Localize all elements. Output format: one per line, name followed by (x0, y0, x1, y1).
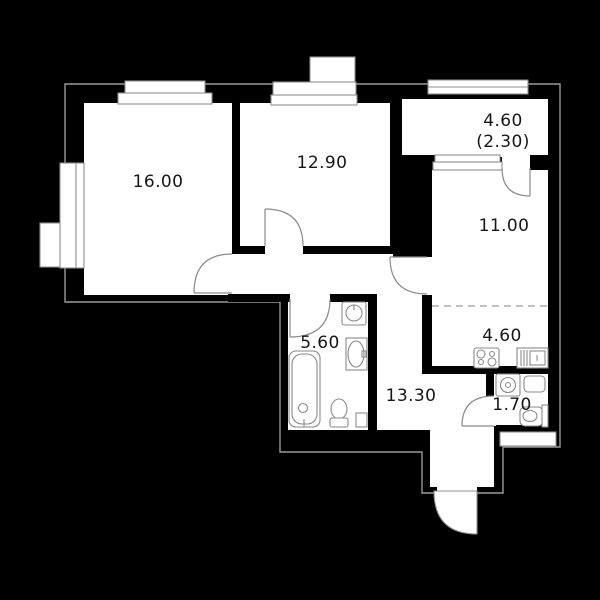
kitchen-zone-area-label: 4.60 (482, 326, 521, 346)
wall-hallway-top-left (232, 246, 265, 254)
bedroom-window-shaft (310, 57, 355, 83)
wc-area-label: 1.70 (492, 395, 531, 415)
vestibule-floor (430, 430, 494, 487)
living-left-window-sill (76, 163, 84, 268)
balcony-reduced-area-label: (2.30) (476, 132, 530, 152)
wall-balcony-bottom-right (530, 155, 548, 170)
bedroom-floor (240, 103, 390, 246)
wc-washing-machine (496, 374, 520, 396)
exterior-landing (500, 432, 556, 446)
wall-bathroom-top-right (330, 294, 368, 302)
wall-living-bedroom (232, 103, 240, 254)
facade-pier (40, 223, 60, 267)
bedroom-top-window-frame (273, 82, 356, 96)
balcony-door-gap (502, 155, 530, 171)
kitchen-sink (517, 348, 548, 368)
balcony-inner-window (433, 155, 502, 170)
wall-bathroom-right (368, 294, 377, 430)
living-top-window-sill (118, 93, 212, 104)
wall-kitchen-left (422, 295, 432, 368)
hallway-area-label: 13.30 (386, 386, 437, 406)
stove (474, 348, 499, 368)
living-top-window-frame (125, 81, 205, 94)
balcony-area-label: 4.60 (483, 111, 522, 131)
bathroom-area-label: 5.60 (300, 333, 339, 353)
bedroom-area-label: 12.90 (297, 153, 348, 173)
living-top-window (118, 81, 212, 104)
living-floor (84, 103, 232, 295)
hallway-floor (232, 254, 432, 295)
wall-bathroom-top-left (228, 294, 290, 302)
balcony-inner-window-frame (435, 155, 500, 162)
wall-balcony-bottom-left (398, 155, 437, 170)
bathtub (289, 351, 320, 427)
living-kitchen-area-label: 11.00 (479, 216, 530, 236)
bathroom-washing-machine (342, 302, 366, 325)
wall-wc-left (486, 374, 494, 396)
floor-plan-canvas: 16.00 12.90 4.60 (2.30) 11.00 4.60 5.60 … (0, 0, 600, 600)
living-area-label: 16.00 (133, 172, 184, 192)
bathroom-sink (346, 338, 367, 370)
balcony-inner-window-sill (433, 162, 502, 170)
floor-plan-svg: 16.00 12.90 4.60 (2.30) 11.00 4.60 5.60 … (0, 0, 600, 600)
balcony-top-window (428, 80, 528, 94)
bedroom-top-window-sill (271, 95, 357, 105)
bathroom-door-gap (290, 294, 330, 303)
wall-hallway-top-right (303, 246, 398, 254)
bathroom-toilet (330, 399, 348, 427)
wall-hallway-end (393, 248, 432, 257)
bedroom-door-gap (265, 246, 303, 254)
living-left-window-frame (60, 163, 76, 268)
